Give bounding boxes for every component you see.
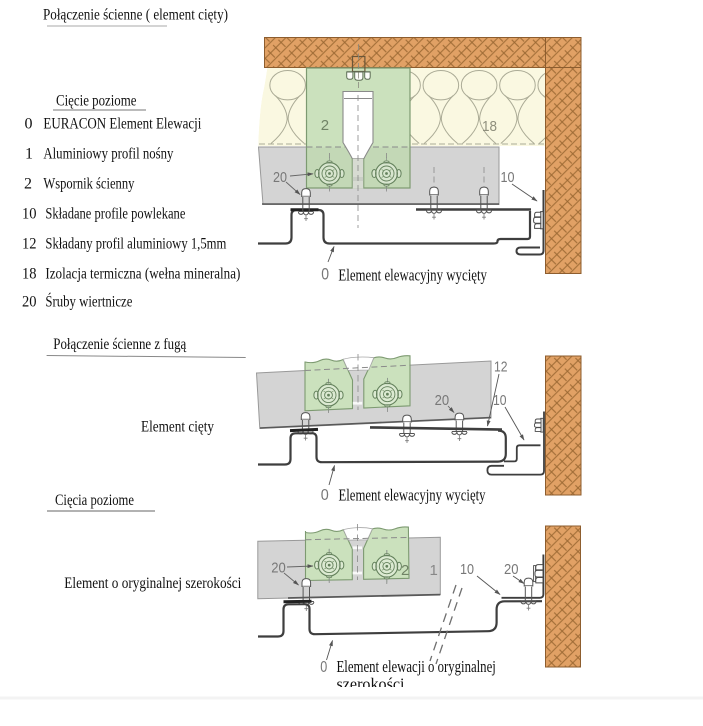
svg-text:2: 2 xyxy=(321,117,329,134)
svg-text:Izolacja termiczna (wełna mine: Izolacja termiczna (wełna mineralna) xyxy=(45,265,240,282)
svg-text:Element o oryginalnej szerokoś: Element o oryginalnej szerokości xyxy=(64,575,241,592)
svg-text:Element elewacji o oryginalnej: Element elewacji o oryginalnej xyxy=(337,657,496,676)
svg-text:20: 20 xyxy=(22,293,37,310)
svg-text:1: 1 xyxy=(25,145,33,162)
svg-text:18: 18 xyxy=(22,265,37,282)
svg-text:20: 20 xyxy=(435,392,450,409)
svg-text:2: 2 xyxy=(401,562,409,579)
svg-text:10: 10 xyxy=(22,205,37,222)
svg-text:Wspornik ścienny: Wspornik ścienny xyxy=(43,175,134,192)
svg-text:Element elewacyjny wycięty: Element elewacyjny wycięty xyxy=(338,266,487,285)
svg-text:18: 18 xyxy=(482,118,497,135)
svg-text:20: 20 xyxy=(273,169,287,186)
svg-text:Śruby wiertnicze: Śruby wiertnicze xyxy=(45,291,132,310)
svg-text:Element cięty: Element cięty xyxy=(141,419,214,436)
svg-text:Cięcia poziome: Cięcia poziome xyxy=(55,492,134,509)
svg-text:Składane profile powlekane: Składane profile powlekane xyxy=(45,205,185,222)
svg-text:Aluminiowy profil nośny: Aluminiowy profil nośny xyxy=(43,145,173,162)
svg-text:Połączenie ścienne z fugą: Połączenie ścienne z fugą xyxy=(53,336,187,353)
svg-text:20: 20 xyxy=(504,561,519,578)
svg-text:Połączenie ścienne ( element c: Połączenie ścienne ( element cięty) xyxy=(43,7,228,24)
svg-text:EURACON Element Elewacji: EURACON Element Elewacji xyxy=(43,115,201,132)
svg-text:2: 2 xyxy=(24,175,32,192)
svg-text:12: 12 xyxy=(22,235,37,252)
svg-text:10: 10 xyxy=(460,561,474,578)
svg-text:10: 10 xyxy=(493,392,507,409)
svg-text:0: 0 xyxy=(321,487,329,504)
svg-text:1: 1 xyxy=(430,562,438,579)
svg-text:Cięcie poziome: Cięcie poziome xyxy=(56,93,137,110)
svg-text:12: 12 xyxy=(494,359,508,376)
svg-text:10: 10 xyxy=(501,169,515,186)
svg-text:0: 0 xyxy=(320,659,327,676)
svg-text:20: 20 xyxy=(271,560,286,577)
svg-text:0: 0 xyxy=(321,265,329,284)
svg-text:0: 0 xyxy=(25,115,33,132)
svg-text:Element elewacyjny wycięty: Element elewacyjny wycięty xyxy=(339,486,486,505)
svg-text:Składany profil aluminiowy 1,5: Składany profil aluminiowy 1,5mm xyxy=(45,235,226,252)
